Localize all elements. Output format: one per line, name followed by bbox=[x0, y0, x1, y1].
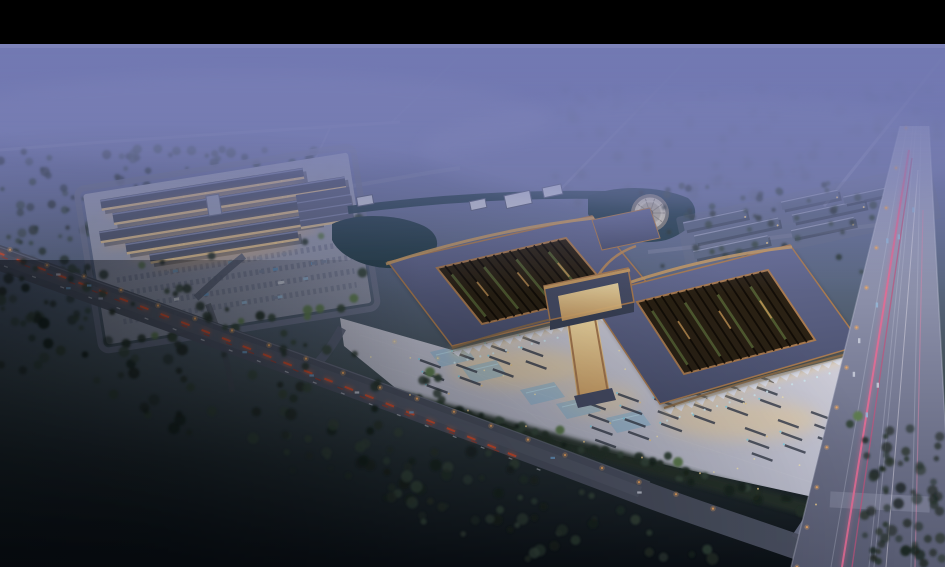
vignette bbox=[0, 44, 945, 567]
scene-svg bbox=[0, 0, 945, 567]
aerial-rendering bbox=[0, 0, 945, 567]
letterbox-top bbox=[0, 0, 945, 44]
